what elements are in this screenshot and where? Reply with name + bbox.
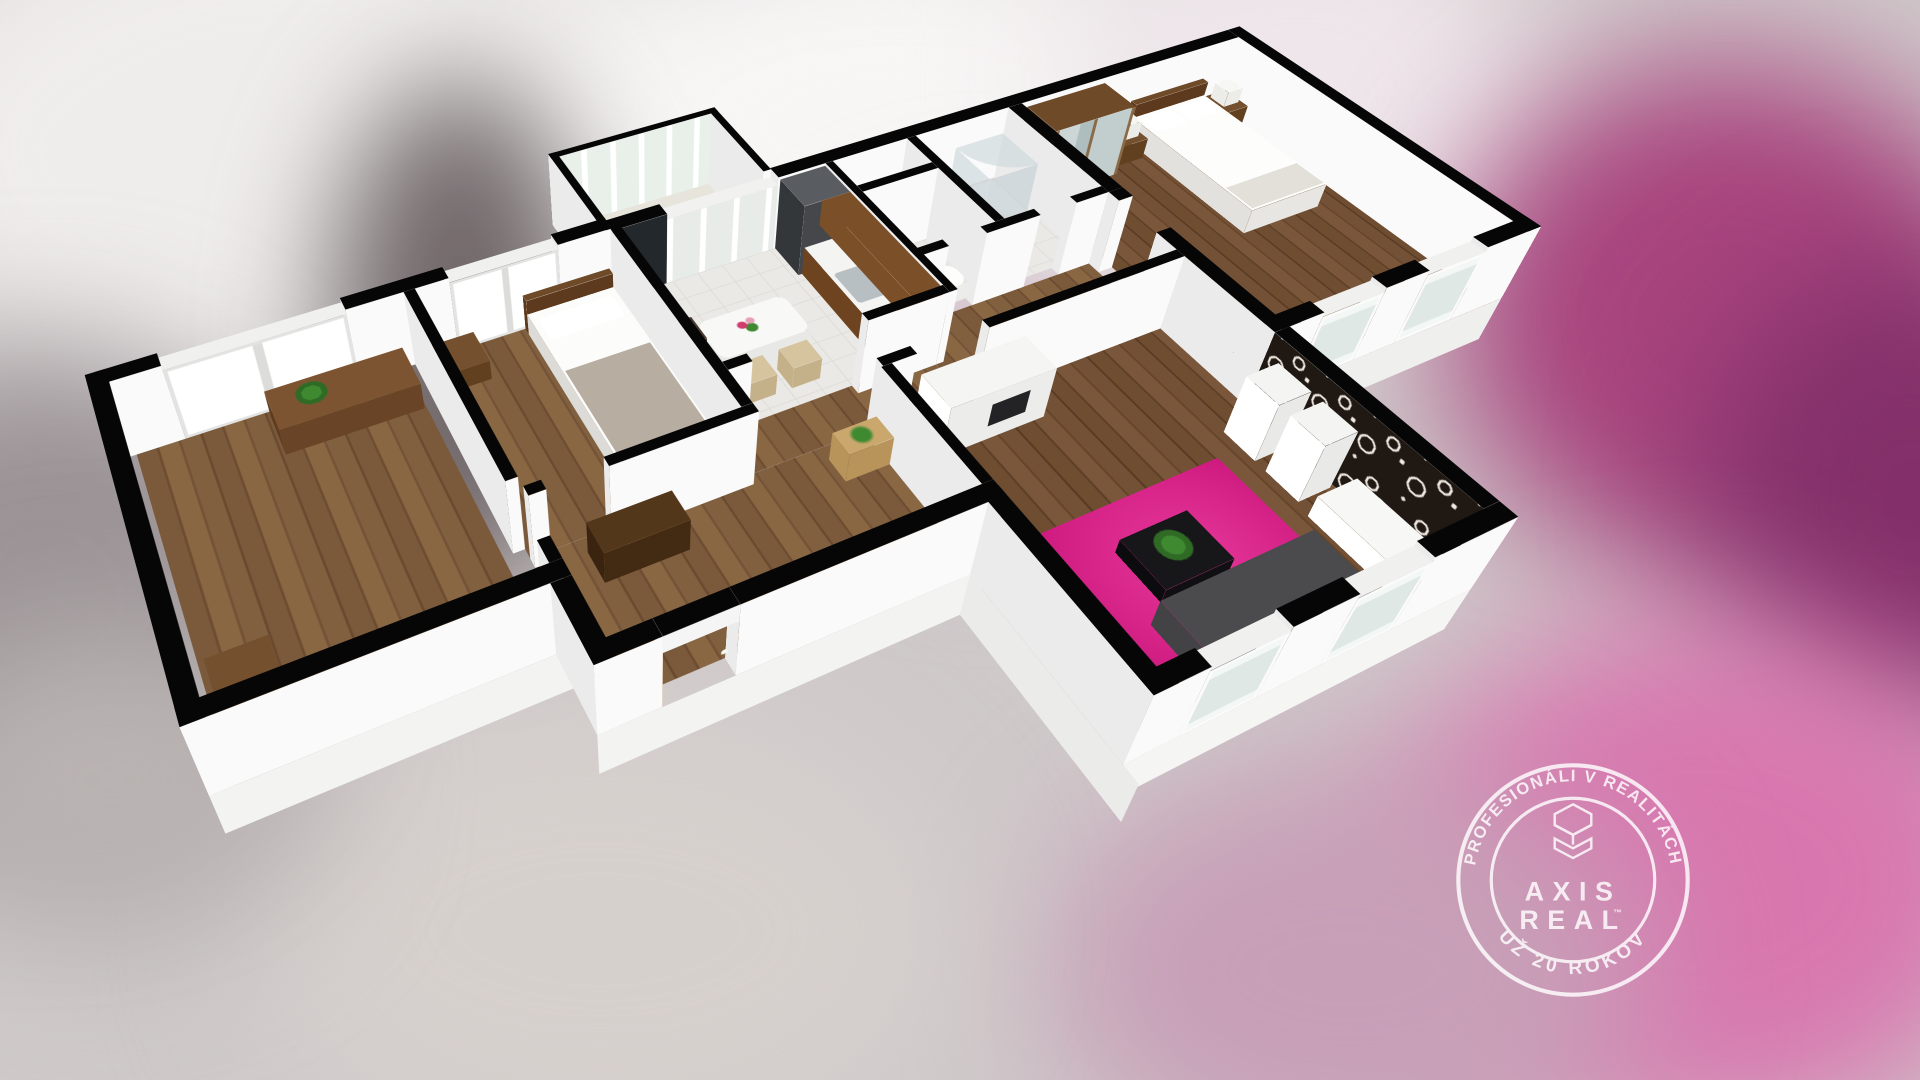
watermark-brand-axis: AXIS — [1525, 877, 1622, 907]
watermark-trademark: ™ — [1613, 907, 1622, 917]
watermark-brand-real: REAL — [1519, 905, 1626, 935]
axis-real-building-icon — [1555, 804, 1592, 858]
watermark-arc-top-text: PROFESIONÁLI V REALITÁCH — [1460, 766, 1685, 867]
axis-real-watermark: PROFESIONÁLI V REALITÁCH UŽ 20 ROKOV AXI… — [1451, 758, 1695, 1002]
